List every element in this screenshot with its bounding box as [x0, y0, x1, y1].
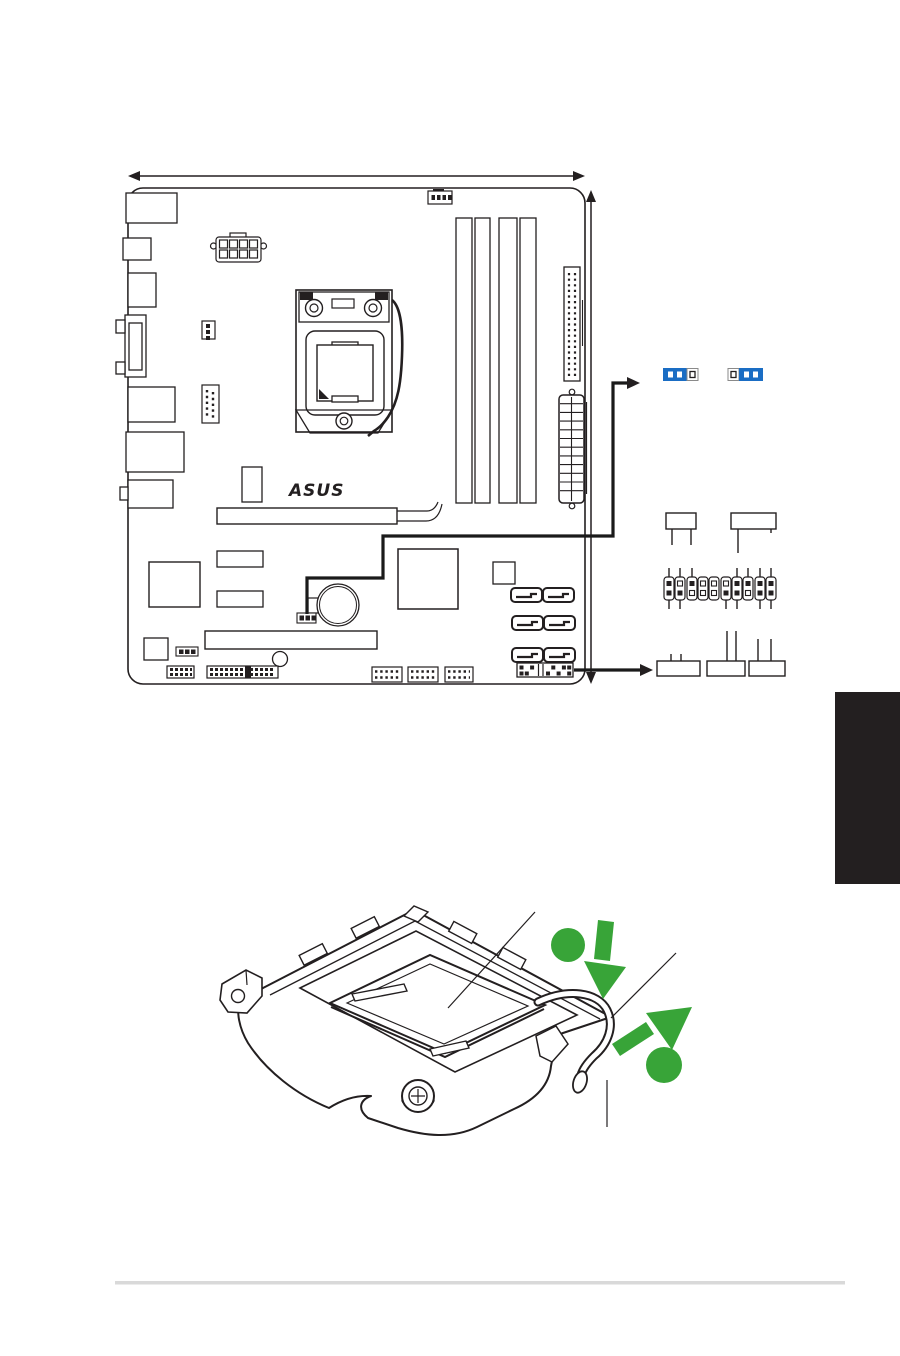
com-port-header	[202, 385, 219, 423]
front-audio-header	[167, 666, 194, 678]
usb-headers	[372, 667, 473, 682]
panel-top-boxes	[666, 513, 776, 553]
lga-cpu-socket	[296, 290, 402, 436]
panel-pin-header	[664, 568, 776, 609]
io-chip	[242, 467, 262, 502]
cpu-socket-figure	[220, 906, 692, 1135]
clrtc-jumper-onboard	[297, 613, 316, 623]
green-step-dot-1	[551, 928, 585, 962]
cpu-fan-header	[428, 189, 452, 204]
load-plate-screw	[402, 1080, 434, 1112]
chip-small-3	[493, 562, 515, 584]
board-width-arrow	[128, 171, 585, 181]
usbpw-jumper	[176, 647, 198, 656]
chassis-fan-header	[202, 321, 215, 340]
page-canvas: ASUS	[0, 0, 900, 1356]
motherboard-figure: ASUS	[116, 171, 785, 684]
pch-chip	[398, 549, 458, 609]
callout-line-panel	[574, 664, 653, 676]
footer-divider	[115, 1281, 845, 1285]
lpt-header	[207, 666, 278, 678]
system-panel-diagram	[657, 513, 785, 676]
manual-page: ASUS	[0, 0, 900, 1356]
chip-small-2	[217, 591, 263, 607]
green-down-arrow	[584, 920, 626, 999]
panel-bottom-boxes	[657, 631, 785, 676]
southbridge-chip	[149, 562, 200, 607]
bios-chip	[144, 638, 168, 660]
callout-line-to-load-plate	[611, 953, 676, 1018]
asus-logo: ASUS	[287, 481, 344, 501]
green-step-dot-2	[646, 1047, 682, 1083]
sata-ports	[511, 588, 575, 662]
clrtc-jumper-setting-normal	[663, 368, 698, 381]
step1-indicator	[551, 920, 626, 999]
chapter-tab	[835, 692, 900, 884]
front-panel-header-onboard	[517, 663, 573, 677]
atx-24pin-connector	[559, 389, 587, 509]
vga-port	[116, 315, 146, 377]
ide-connector	[564, 267, 583, 381]
clrtc-jumper-setting-clear	[728, 368, 763, 381]
board-height-arrow	[586, 190, 596, 684]
atx12v-8pin-connector	[211, 233, 267, 262]
chip-small-1	[217, 551, 263, 567]
step2-indicator	[612, 1007, 692, 1083]
green-up-right-arrow	[612, 1007, 692, 1056]
